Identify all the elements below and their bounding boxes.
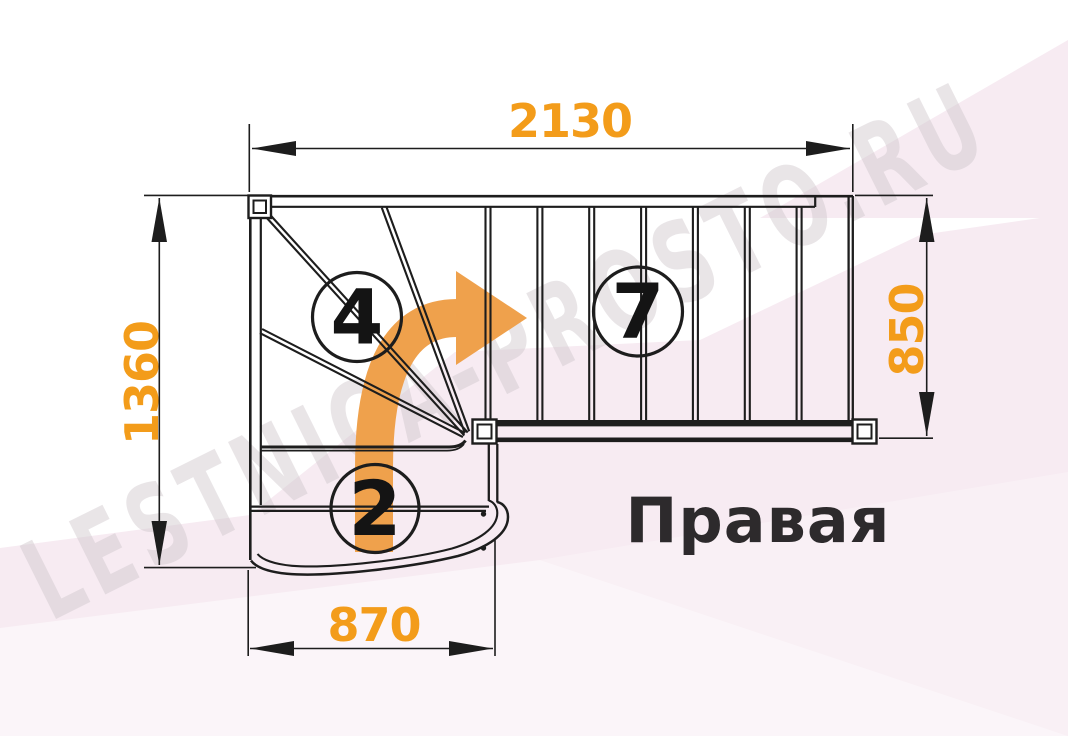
dimension-top-label: 2130 [508, 94, 632, 148]
arrowhead-left-icon [252, 141, 296, 156]
arrowhead-up-icon [152, 198, 168, 242]
dimension-bottom-label: 870 [327, 598, 420, 652]
newel-post-topleft [249, 196, 272, 219]
dimension-right-label: 850 [880, 283, 934, 376]
baluster-dot [481, 545, 486, 550]
baluster-dot [481, 511, 486, 516]
step-count-value: 4 [331, 273, 384, 362]
newel-post-right [853, 420, 877, 444]
stair-plan-page: LESTNICA-PROSTO.RU [0, 0, 1068, 736]
step-count-winder: 4 [313, 273, 402, 362]
page-title: Правая [626, 484, 891, 557]
step-count-value: 7 [612, 267, 665, 356]
newel-post-center [473, 420, 497, 444]
stair-plan-drawing: LESTNICA-PROSTO.RU [0, 0, 1068, 736]
dimension-left-label: 1360 [115, 321, 169, 445]
step-count-value: 2 [349, 464, 402, 553]
